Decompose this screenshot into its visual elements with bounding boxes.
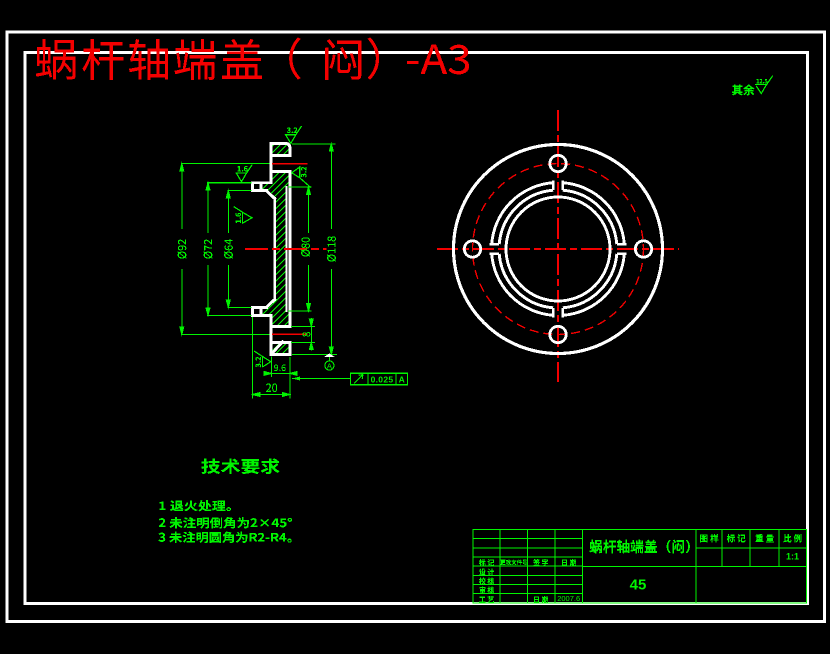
svg-text:1:1: 1:1 [786, 552, 799, 562]
svg-text:0.025: 0.025 [371, 374, 394, 384]
svg-text:A: A [399, 375, 405, 385]
svg-text:45: 45 [630, 577, 647, 594]
svg-text:2007.6: 2007.6 [557, 594, 580, 603]
svg-text:A: A [327, 362, 332, 371]
